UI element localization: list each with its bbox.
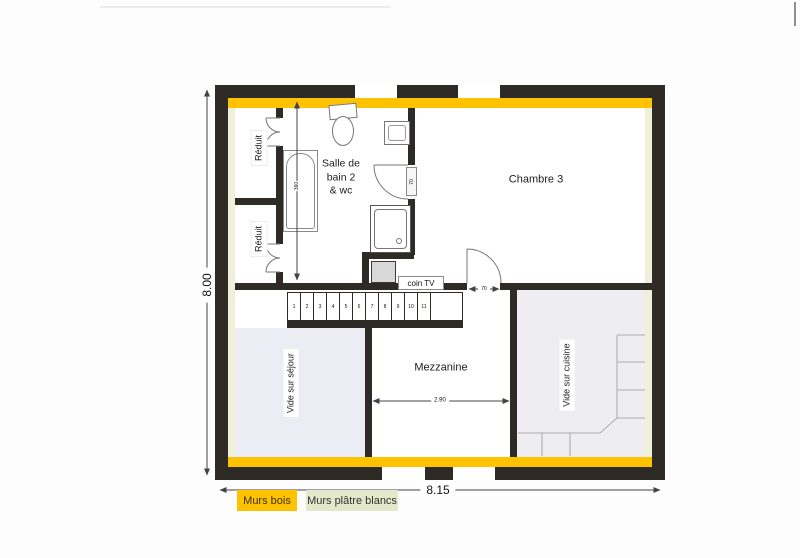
wall-reduit-vertical-b — [276, 146, 283, 244]
label-chambre3: Chambre 3 — [509, 173, 563, 186]
floor-plan-scan: 1 2 3 4 5 6 7 8 9 10 11 — [0, 0, 800, 558]
wood-wall-strip-bottom — [228, 457, 652, 467]
dim-label-height: 8.00 — [200, 267, 214, 302]
legend-wood-walls: Murs bois — [237, 490, 297, 511]
stair-landing — [431, 293, 462, 320]
stair-number: 6 — [358, 304, 361, 310]
stair-tread: 6 — [353, 293, 366, 320]
stair-tread: 4 — [327, 293, 340, 320]
dim-label-bathroom-door-value: 70 — [409, 179, 415, 185]
stair-tread: 3 — [314, 293, 327, 320]
stair-tread: 8 — [379, 293, 392, 320]
wall-door-stub — [443, 283, 467, 290]
stair-number: 1 — [293, 304, 296, 310]
stair-tread: 5 — [340, 293, 353, 320]
wall-coin-tv-bottom — [369, 283, 400, 290]
window-top-right — [458, 85, 500, 98]
label-vide-cuisine: Vide sur cuisine — [559, 338, 576, 411]
stair-number: 8 — [384, 304, 387, 310]
stair-number: 9 — [397, 304, 400, 310]
wall-coin-tv-left — [362, 259, 369, 290]
stair-tread: 11 — [418, 293, 431, 320]
vide-cuisine-area — [517, 290, 645, 457]
label-bathroom-line1: Salle de — [322, 158, 360, 172]
shower-drain-icon — [396, 238, 402, 244]
dim-label-chambre-door: 70 — [480, 286, 488, 292]
wall-between-reduits — [235, 198, 276, 205]
window-bottom-left — [382, 467, 425, 480]
stair-number: 5 — [345, 304, 348, 310]
dim-label-mezzanine: 2.90 — [431, 397, 449, 404]
wall-mezzanine-right — [510, 283, 517, 457]
wall-reduit-vertical-a — [276, 108, 283, 118]
legend-plaster-walls: Murs plâtre blancs — [306, 490, 398, 511]
stair-tread: 1 — [288, 293, 301, 320]
stair-tread: 2 — [301, 293, 314, 320]
staircase: 1 2 3 4 5 6 7 8 9 10 11 — [287, 292, 463, 321]
stair-tread: 7 — [366, 293, 379, 320]
dim-label-bathroom: 360 — [294, 181, 300, 191]
stair-number: 10 — [408, 304, 414, 310]
label-coin-tv: coin TV — [398, 276, 444, 290]
wood-wall-strip-top — [228, 98, 652, 108]
stair-tread: 9 — [392, 293, 405, 320]
window-top-left — [355, 85, 397, 98]
label-mezzanine: Mezzanine — [414, 361, 467, 374]
dim-label-width: 8.15 — [420, 483, 455, 497]
wall-stairs-bottom — [287, 321, 463, 328]
plaster-wall-strip-left — [228, 108, 235, 457]
label-vide-sejour: Vide sur séjour — [283, 348, 300, 418]
stair-number: 7 — [371, 304, 374, 310]
vide-sejour-area — [235, 328, 365, 457]
wall-mezzanine-left — [365, 321, 372, 457]
outer-wall-right — [652, 85, 665, 480]
stair-number: 4 — [332, 304, 335, 310]
outer-wall-bottom — [215, 467, 665, 480]
outer-wall-top — [215, 85, 665, 98]
bathtub-inner — [286, 153, 315, 229]
stair-tread: 10 — [405, 293, 418, 320]
label-reduit-bottom: Réduit — [251, 221, 268, 257]
label-bathroom-line2: bain 2 — [322, 171, 360, 185]
scan-artifact-right — [794, 2, 796, 26]
stair-number: 3 — [319, 304, 322, 310]
label-bathroom: Salle de bain 2 & wc — [322, 158, 360, 199]
window-bottom-right — [453, 467, 495, 480]
dim-label-bathroom-door: 70 — [406, 167, 417, 196]
wall-coin-tv-top — [362, 252, 414, 259]
scan-artifact-top — [100, 6, 390, 8]
shower-tray — [374, 209, 407, 249]
sink-basin — [388, 125, 406, 141]
label-reduit-top: Réduit — [251, 130, 268, 166]
duct-block — [371, 261, 396, 283]
wall-bathroom-bottom — [235, 283, 362, 290]
stair-number: 2 — [306, 304, 309, 310]
toilet-bowl — [332, 116, 354, 146]
stair-number: 11 — [421, 304, 426, 310]
wall-chambre-cuisine — [500, 283, 652, 290]
outer-wall-left — [215, 85, 228, 480]
label-bathroom-line3: & wc — [322, 185, 360, 199]
